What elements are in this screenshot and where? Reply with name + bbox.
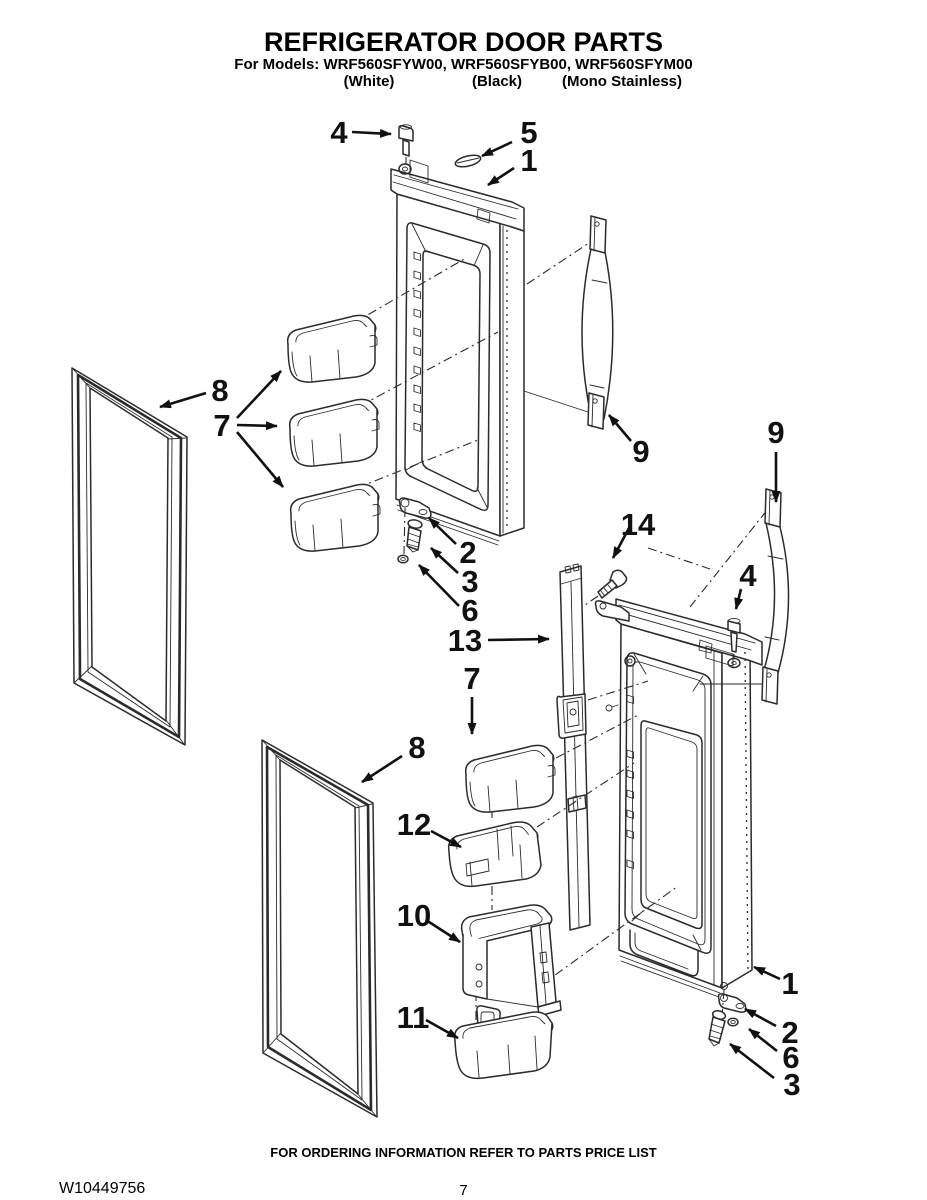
- door-panel-lower: [596, 599, 763, 997]
- mullion-strip-13: [557, 564, 618, 930]
- door-bin-7-3: [291, 484, 380, 551]
- callout-13: 13: [448, 623, 482, 658]
- callout-12: 12: [397, 807, 431, 842]
- callout-11: 11: [397, 1000, 430, 1035]
- parts-diagram-page: REFRIGERATOR DOOR PARTS For Models: WRF5…: [0, 0, 927, 1200]
- exploded-view-drawing: 4 5 1 8 7 9 9 14 2 3 6 13 4 7 8 12 10 11…: [0, 0, 927, 1200]
- nut-6-upper: [398, 555, 408, 563]
- screw-3-lower: [709, 1009, 726, 1046]
- door-bin-7-2: [290, 399, 379, 466]
- callout-9-left: 9: [632, 434, 649, 469]
- callout-1-upper: 1: [520, 143, 537, 178]
- callout-1-lower: 1: [781, 966, 798, 1001]
- bin-part-12: [449, 822, 541, 886]
- callout-3-lower: 3: [783, 1067, 800, 1102]
- callout-10: 10: [397, 898, 431, 933]
- callout-14: 14: [621, 507, 656, 542]
- callout-7-upper: 7: [213, 408, 230, 443]
- page-number: 7: [0, 1183, 927, 1198]
- ordering-note: FOR ORDERING INFORMATION REFER TO PARTS …: [0, 1146, 927, 1159]
- door-bin-7-lower: [466, 745, 555, 812]
- door-handle-lower: [762, 489, 789, 704]
- door-bin-7-1: [288, 315, 377, 382]
- callout-4-upper: 4: [330, 115, 348, 150]
- door-panel-upper: [391, 160, 524, 545]
- callout-7-lower: 7: [463, 661, 480, 696]
- door-handle-upper: [582, 216, 613, 429]
- bin-part-11: [455, 1006, 553, 1079]
- callout-8-upper: 8: [211, 373, 228, 408]
- plug-5: [454, 153, 482, 169]
- callout-9-right: 9: [767, 415, 784, 450]
- door-gasket-upper: [72, 368, 187, 745]
- nut-6-lower: [728, 1018, 738, 1026]
- callout-4-lower: 4: [739, 558, 757, 593]
- screw-4-upper: [399, 125, 413, 164]
- callout-8-lower: 8: [408, 730, 425, 765]
- screw-3-upper: [407, 519, 423, 552]
- door-gasket-lower: [262, 740, 377, 1117]
